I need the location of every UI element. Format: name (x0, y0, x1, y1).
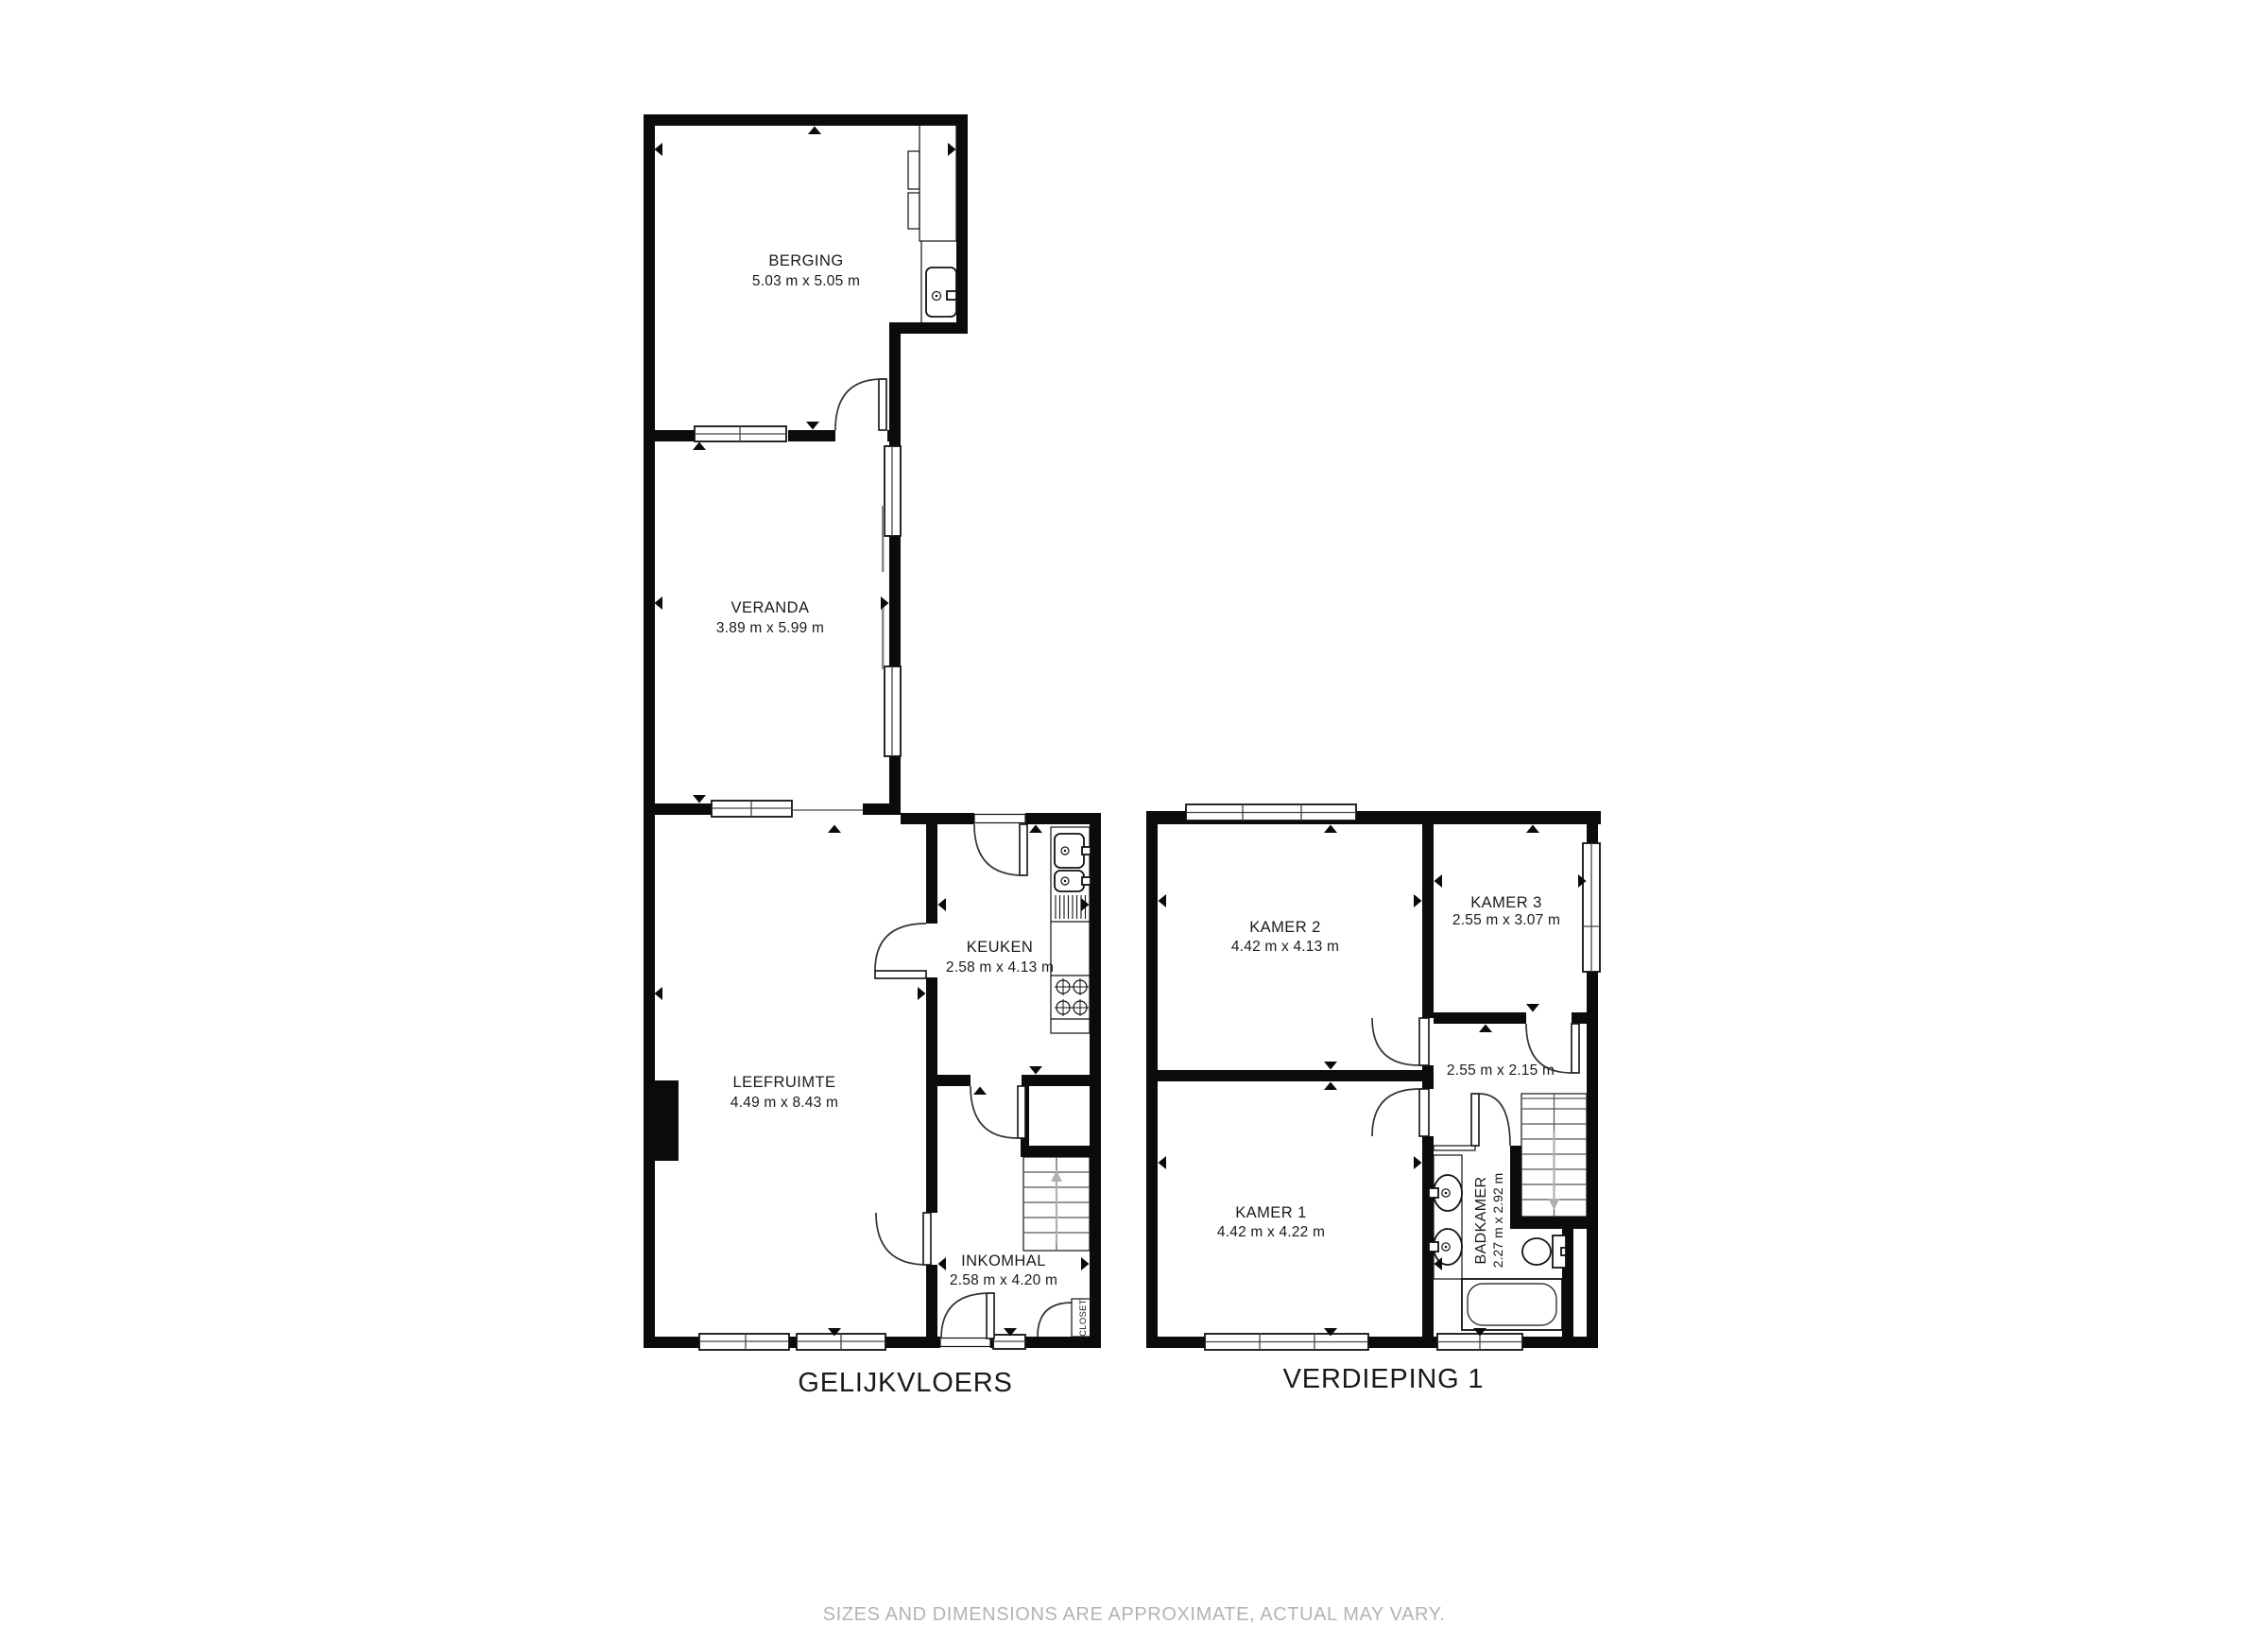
window-berging-veranda (695, 426, 786, 441)
door-keuken-back (974, 824, 1027, 875)
floor-title-gelijkvloers: GELIJKVLOERS (798, 1368, 1012, 1398)
footer-disclaimer: SIZES AND DIMENSIONS ARE APPROXIMATE, AC… (823, 1604, 1446, 1625)
room-label-leefruimte: LEEFRUIMTE 4.49 m x 8.43 m (730, 1074, 838, 1111)
room-name: KEUKEN (967, 939, 1034, 956)
room-dims: 4.49 m x 8.43 m (730, 1095, 838, 1111)
bathtub (1462, 1279, 1562, 1330)
room-label-kamer3: KAMER 3 2.55 m x 3.07 m (1452, 894, 1560, 928)
floor-title-verdieping-1: VERDIEPING 1 (1283, 1364, 1485, 1394)
room-name: BERGING (768, 252, 843, 269)
door-berging-veranda (835, 379, 886, 430)
window-leefruimte-bottom-right (797, 1334, 885, 1350)
room-dims: 4.42 m x 4.22 m (1217, 1224, 1325, 1240)
room-dims: 2.58 m x 4.13 m (946, 959, 1054, 976)
room-label-kamer2: KAMER 2 4.42 m x 4.13 m (1231, 919, 1339, 955)
ground-walls (644, 114, 1101, 1348)
closet-label: CLOSET (1078, 1299, 1089, 1337)
hall-dims: 2.55 m x 2.15 m (1447, 1062, 1555, 1079)
bathroom-vanity (1429, 1155, 1462, 1279)
closet-niche: CLOSET (1072, 1299, 1091, 1337)
ground-wall-openings (695, 430, 1025, 1348)
floor-plan-verdieping-1: KAMER 2 4.42 m x 4.13 m KAMER 3 2.55 m x… (1146, 804, 1601, 1394)
room-label-berging: BERGING 5.03 m x 5.05 m (752, 252, 860, 289)
toilet (1522, 1235, 1566, 1268)
room-dims: 4.42 m x 4.13 m (1231, 939, 1339, 955)
room-name: LEEFRUIMTE (732, 1074, 835, 1091)
window-badkamer-bottom (1437, 1334, 1522, 1350)
first-floor-walls (1146, 811, 1601, 1348)
stairs-first-floor (1521, 1094, 1587, 1217)
stairs-ground (1023, 1157, 1090, 1251)
kitchen-sink (1055, 834, 1091, 891)
room-name: KAMER 3 (1470, 894, 1542, 911)
room-dims: 2.27 m x 2.92 m (1490, 1173, 1505, 1268)
floor-plan-canvas: CLOSET BERGING 5.03 m x 5.05 m VERANDA 3… (0, 0, 2268, 1641)
kitchen-drainer (1056, 895, 1086, 919)
window-kamer2-top (1186, 804, 1356, 820)
room-dims: 2.55 m x 3.07 m (1452, 912, 1560, 928)
room-name: KAMER 2 (1249, 919, 1321, 936)
door-leefruimte-keuken (875, 924, 926, 978)
door-leefruimte-inkomhal (876, 1213, 931, 1265)
door-badkamer (1471, 1094, 1510, 1146)
window-kamer3-right (1583, 843, 1600, 972)
berging-sink (921, 241, 956, 322)
door-closet (1038, 1303, 1072, 1337)
stairs-down-arrow (1549, 1199, 1560, 1210)
window-leefruimte-bottom-left (699, 1334, 789, 1350)
door-front-entrance (941, 1293, 994, 1339)
door-kamer1 (1372, 1089, 1429, 1136)
room-dims: 2.58 m x 4.20 m (950, 1272, 1057, 1288)
room-name: VERANDA (731, 599, 810, 616)
room-dims: 5.03 m x 5.05 m (752, 273, 860, 289)
room-name: INKOMHAL (961, 1252, 1046, 1270)
room-label-veranda: VERANDA 3.89 m x 5.99 m (716, 599, 824, 636)
badkamer-partition-wall (1434, 1146, 1475, 1150)
room-dims: 3.89 m x 5.99 m (716, 620, 824, 636)
floor-plan-gelijkvloers: CLOSET BERGING 5.03 m x 5.05 m VERANDA 3… (644, 114, 1101, 1398)
berging-shelf-unit (908, 125, 956, 241)
room-label-inkomhal: INKOMHAL 2.58 m x 4.20 m (950, 1252, 1057, 1288)
room-name: BADKAMER (1473, 1177, 1489, 1265)
window-kamer1-bottom (1205, 1334, 1368, 1350)
room-label-kamer1: KAMER 1 4.42 m x 4.22 m (1217, 1204, 1325, 1240)
window-inkomhal-bottom (993, 1335, 1025, 1349)
room-label-badkamer: BADKAMER 2.27 m x 2.92 m (1473, 1173, 1505, 1268)
room-name: KAMER 1 (1235, 1204, 1307, 1221)
kitchen-stove (1055, 978, 1089, 1016)
room-label-keuken: KEUKEN 2.58 m x 4.13 m (946, 939, 1054, 976)
door-kamer2 (1372, 1018, 1429, 1065)
